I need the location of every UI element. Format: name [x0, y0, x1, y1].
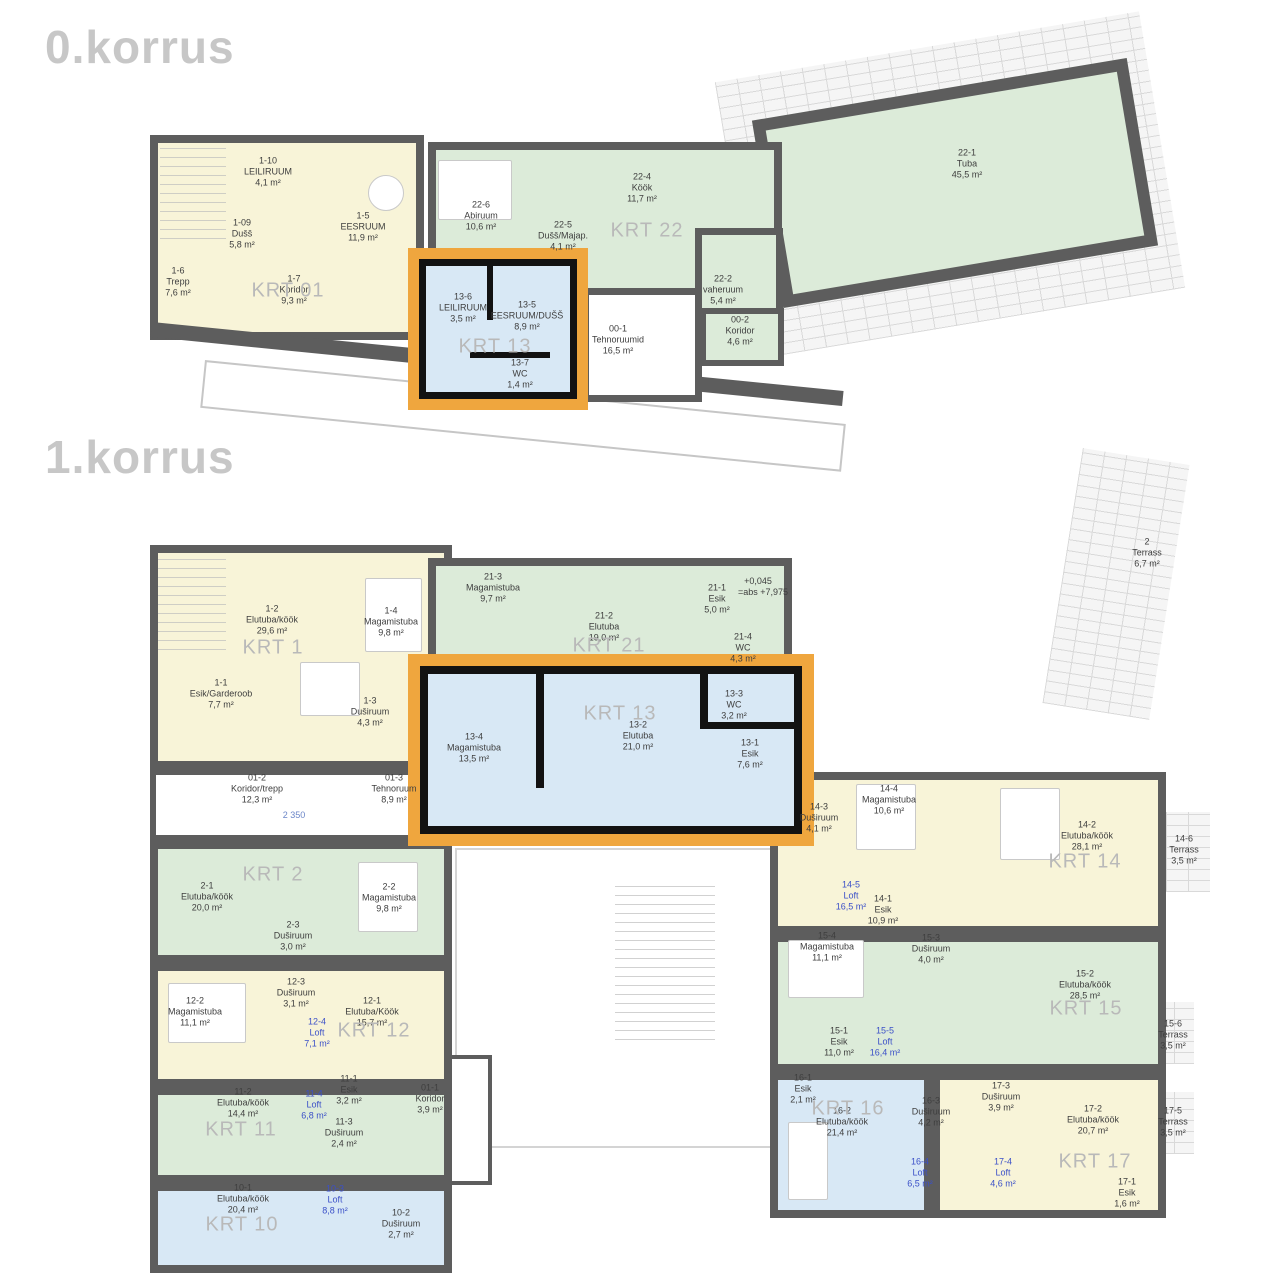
- room-label-22-4: 22-4Köök11,7 m²: [627, 172, 657, 205]
- room-label-15-4: 15-4Magamistuba11,1 m²: [800, 931, 854, 964]
- room-label-14-3: 14-3Duširuum4,1 m²: [800, 802, 839, 835]
- apartment-label-krt-21: KRT 21: [572, 635, 645, 658]
- room-label-13-1: 13-1Esik7,6 m²: [737, 738, 763, 771]
- room-label-01-2: 01-2Koridor/trepp12,3 m²: [231, 773, 283, 806]
- room-label-14-2: 14-2Elutuba/köök28,1 m²: [1061, 820, 1113, 853]
- room-label-1-6: 1-6Trepp7,6 m²: [165, 266, 191, 299]
- room-label-1-2: 1-2Elutuba/köök29,6 m²: [246, 604, 298, 637]
- room-label-10-1: 10-1Elutuba/köök20,4 m²: [217, 1183, 269, 1216]
- room-label-10-2: 10-2Duširuum2,7 m²: [382, 1208, 421, 1241]
- apartment-label-krt-14: KRT 14: [1048, 851, 1121, 874]
- apartment-label-krt-22: KRT 22: [610, 220, 683, 243]
- room-label-13-5: 13-5EESRUUM/DUŠŠ8,9 m²: [491, 300, 564, 333]
- room-label-17-5: 17-5Terrass3,5 m²: [1158, 1106, 1188, 1139]
- room-label-1-10: 1-10LEILIRUUM4,1 m²: [244, 156, 292, 189]
- apartment-label-krt-13: KRT 13: [458, 336, 531, 359]
- room-label-13-4: 13-4Magamistuba13,5 m²: [447, 732, 501, 765]
- room-label-22-2: 22-2vaheruum5,4 m²: [703, 274, 743, 307]
- apartment-label-krt-13: KRT 13: [583, 703, 656, 726]
- annotation-dim: 2 350: [283, 810, 306, 820]
- room-label-01-3: 01-3Tehnoruum8,9 m²: [371, 773, 416, 806]
- room-label-14-5: 14-5Loft16,5 m²: [836, 880, 867, 913]
- room-label-21-1: 21-1Esik5,0 m²: [704, 583, 730, 616]
- apartment-label-krt-10: KRT 10: [205, 1214, 278, 1237]
- room-label-11-2: 11-2Elutuba/köök14,4 m²: [217, 1087, 269, 1120]
- apartment-label-krt-11: KRT 11: [205, 1119, 277, 1142]
- room-label-17-2: 17-2Elutuba/köök20,7 m²: [1067, 1104, 1119, 1137]
- room-label-10-3: 10-3Loft8,8 m²: [322, 1184, 348, 1217]
- room-label-15-6: 15-6Terrass3,5 m²: [1158, 1019, 1188, 1052]
- room-label-1-5: 1-5EESRUUM11,9 m²: [340, 211, 385, 244]
- annotation-level: =abs +7,975: [738, 587, 788, 597]
- room-label-14-4: 14-4Magamistuba10,6 m²: [862, 784, 916, 817]
- room-label-11-1: 11-1Esik3,2 m²: [336, 1074, 362, 1107]
- room-label-1-3: 1-3Duširuum4,3 m²: [351, 696, 390, 729]
- room-label-14-6: 14-6Terrass3,5 m²: [1169, 834, 1199, 867]
- room-label-11-3: 11-3Duširuum2,4 m²: [325, 1117, 364, 1150]
- annotation-level: +0,045: [744, 576, 772, 586]
- room-label-14-1: 14-1Esik10,9 m²: [868, 894, 899, 927]
- room-label-15-1: 15-1Esik11,0 m²: [824, 1026, 854, 1059]
- room-label-2-1: 2-1Elutuba/köök20,0 m²: [181, 881, 233, 914]
- room-label-1-1: 1-1Esik/Garderoob7,7 m²: [190, 678, 253, 711]
- room-label-21-3: 21-3Magamistuba9,7 m²: [466, 572, 520, 605]
- room-label-01-1: 01-1Koridor3,9 m²: [415, 1083, 444, 1116]
- room-label-13-7: 13-7WC1,4 m²: [507, 358, 533, 391]
- apartment-label-krt-15: KRT 15: [1049, 998, 1122, 1021]
- room-label-21-4: 21-4WC4,3 m²: [730, 632, 756, 665]
- apartment-label-krt-01: KRT 01: [251, 280, 324, 303]
- room-label-17-3: 17-3Duširuum3,9 m²: [982, 1081, 1021, 1114]
- room-label-11-4: 11-4Loft6,8 m²: [301, 1089, 327, 1122]
- room-label-16-3: 16-3Duširuum4,2 m²: [912, 1096, 951, 1129]
- apartment-label-krt-12: KRT 12: [337, 1020, 410, 1043]
- room-label-13-6: 13-6LEILIRUUM3,5 m²: [439, 292, 487, 325]
- room-label-15-3: 15-3Duširuum4,0 m²: [912, 933, 951, 966]
- apartment-label-krt-17: KRT 17: [1058, 1151, 1131, 1174]
- room-label-2-2: 2-2Magamistuba9,8 m²: [362, 882, 416, 915]
- room-label-22-6: 22-6Abiruum10,6 m²: [464, 200, 498, 233]
- apartment-label-krt-1: KRT 1: [243, 637, 304, 660]
- room-label-16-4: 16-4Loft6,5 m²: [907, 1157, 933, 1190]
- room-label-22-1: 22-1Tuba45,5 m²: [952, 148, 983, 181]
- apartment-label-krt-16: KRT 16: [811, 1098, 884, 1121]
- room-label-12-2: 12-2Magamistuba11,1 m²: [168, 996, 222, 1029]
- floor-plan-canvas: 0.korrus 1.korrus: [0, 0, 1280, 1280]
- room-label-13-3: 13-3WC3,2 m²: [721, 689, 747, 722]
- room-label-22-5: 22-5Dušš/Majap.4,1 m²: [538, 220, 588, 253]
- room-label-17-4: 17-4Loft4,6 m²: [990, 1157, 1016, 1190]
- room-label-1-09: 1-09Dušš5,8 m²: [229, 218, 255, 251]
- room-label-1-4: 1-4Magamistuba9,8 m²: [364, 606, 418, 639]
- room-label-12-4: 12-4Loft7,1 m²: [304, 1017, 330, 1050]
- room-label-15-5: 15-5Loft16,4 m²: [870, 1026, 901, 1059]
- room-label-12-3: 12-3Duširuum3,1 m²: [277, 977, 316, 1010]
- room-label-2: 2Terrass6,7 m²: [1132, 537, 1162, 570]
- labels-layer: 1-10LEILIRUUM4,1 m²1-09Dušš5,8 m²1-5EESR…: [0, 0, 1280, 1280]
- room-label-2-3: 2-3Duširuum3,0 m²: [274, 920, 313, 953]
- apartment-label-krt-2: KRT 2: [243, 864, 304, 887]
- room-label-00-1: 00-1Tehnoruumid16,5 m²: [592, 324, 644, 357]
- room-label-00-2: 00-2Koridor4,6 m²: [725, 315, 754, 348]
- room-label-17-1: 17-1Esik1,6 m²: [1114, 1177, 1140, 1210]
